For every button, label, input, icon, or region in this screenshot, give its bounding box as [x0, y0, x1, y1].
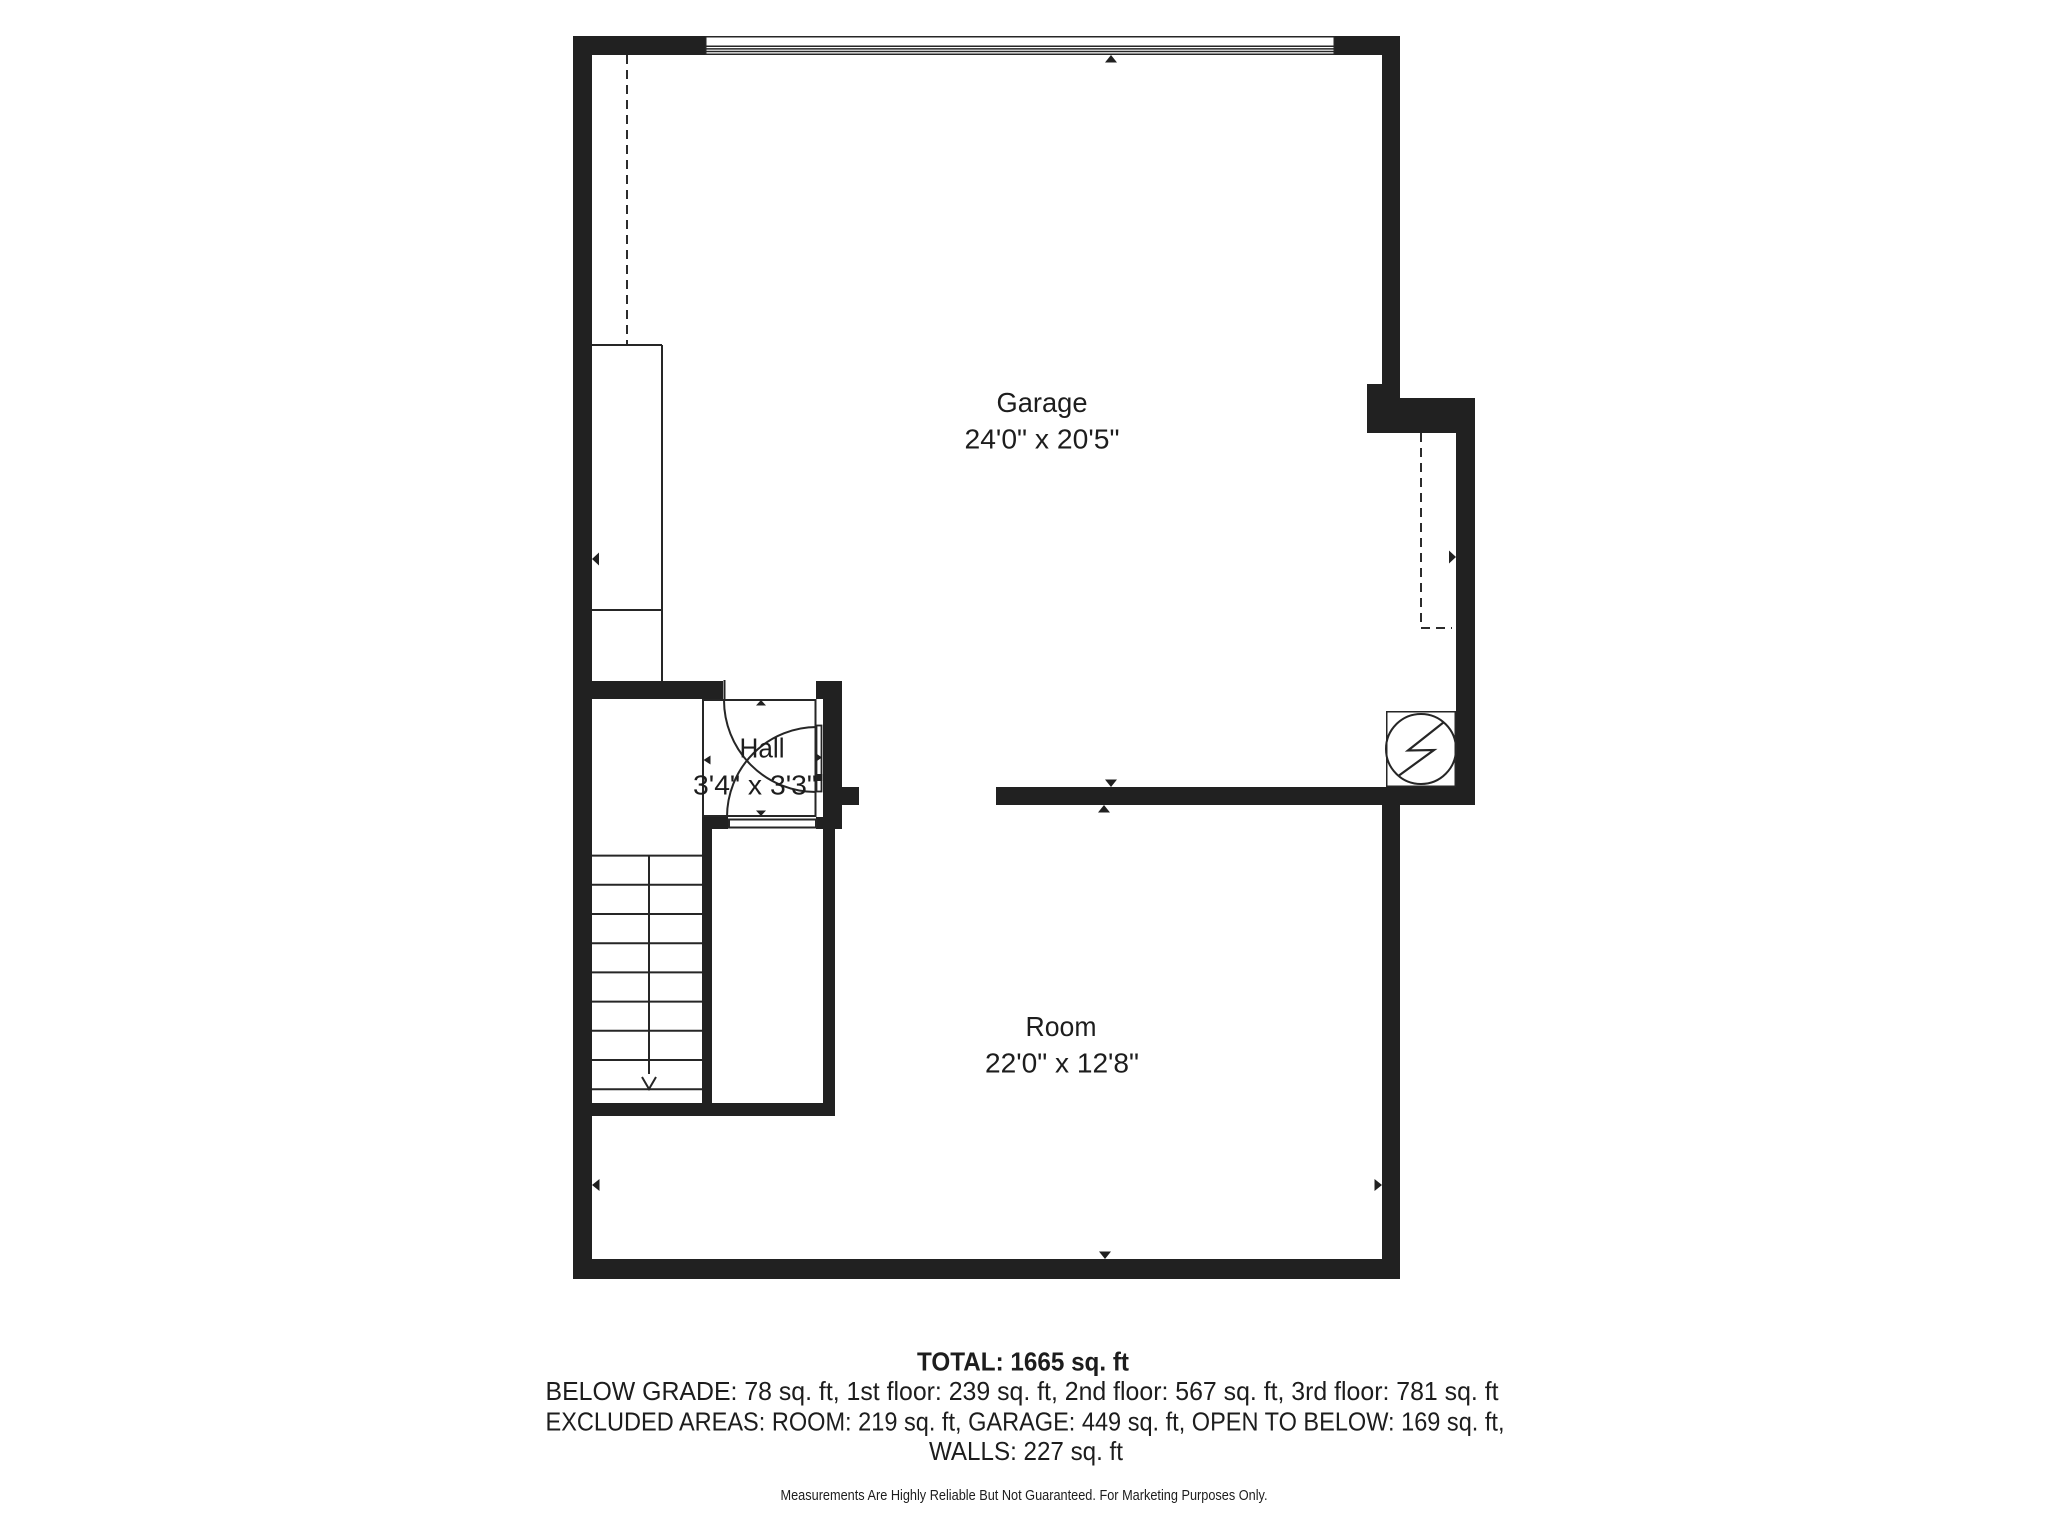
svg-text:Hall: Hall [740, 733, 785, 764]
svg-text:3'4" x 3'3": 3'4" x 3'3" [693, 770, 817, 801]
svg-text:TOTAL: 1665 sq. ft: TOTAL: 1665 sq. ft [917, 1347, 1129, 1377]
svg-text:22'0" x 12'8": 22'0" x 12'8" [985, 1048, 1139, 1079]
svg-text:WALLS: 227 sq. ft: WALLS: 227 sq. ft [929, 1436, 1124, 1466]
svg-text:Measurements Are Highly Reliab: Measurements Are Highly Reliable But Not… [781, 1488, 1268, 1504]
svg-text:24'0" x 20'5": 24'0" x 20'5" [965, 424, 1120, 455]
svg-text:BELOW GRADE: 78 sq. ft, 1st fl: BELOW GRADE: 78 sq. ft, 1st floor: 239 s… [546, 1376, 1500, 1406]
svg-text:Garage: Garage [997, 387, 1088, 418]
svg-text:Room: Room [1026, 1011, 1097, 1042]
svg-text:EXCLUDED AREAS: ROOM: 219 sq.: EXCLUDED AREAS: ROOM: 219 sq. ft, GARAGE… [546, 1407, 1505, 1437]
